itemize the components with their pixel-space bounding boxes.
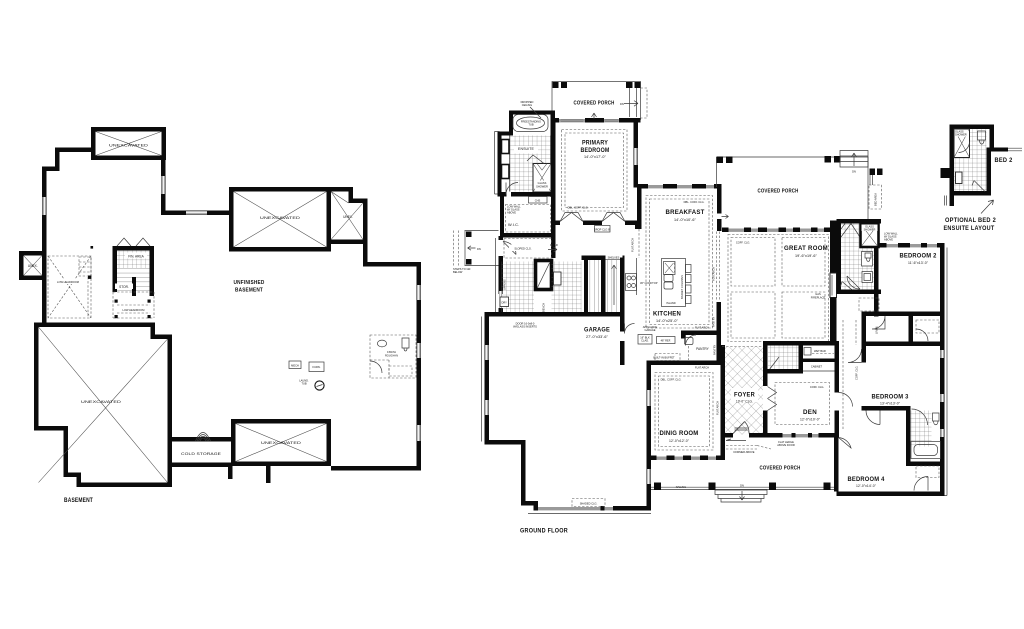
- svg-text:LOW HEADROOM: LOW HEADROOM: [123, 308, 145, 312]
- svg-text:DBL. COFF. CLG.: DBL. COFF. CLG.: [661, 378, 682, 382]
- svg-text:OPTIONAL BED 2: OPTIONAL BED 2: [945, 217, 996, 224]
- svg-text:W/GLASS INSERTS: W/GLASS INSERTS: [513, 325, 537, 329]
- svg-text:BELOW: BELOW: [453, 270, 463, 274]
- svg-text:FLAT ARCH: FLAT ARCH: [712, 267, 716, 281]
- svg-text:ABOVE DOOR: ABOVE DOOR: [777, 443, 795, 447]
- svg-text:BASEMENT: BASEMENT: [64, 498, 93, 504]
- svg-text:FOYER: FOYER: [734, 392, 755, 399]
- svg-text:13'-4"x13'-0": 13'-4"x13'-0": [880, 401, 900, 406]
- svg-text:10'-0" CLG.: 10'-0" CLG.: [736, 399, 753, 404]
- svg-text:STOR.: STOR.: [119, 285, 129, 289]
- svg-text:DEN: DEN: [803, 409, 817, 416]
- svg-text:DINIG ROOM: DINIG ROOM: [660, 431, 699, 437]
- svg-text:11'-6"x13'-0": 11'-6"x13'-0": [908, 260, 928, 265]
- svg-text:12'-0"x12'-0": 12'-0"x12'-0": [669, 438, 689, 443]
- svg-text:PANTRY: PANTRY: [712, 316, 716, 327]
- svg-text:WET BAR: WET BAR: [814, 349, 826, 353]
- svg-text:UNEX.: UNEX.: [28, 264, 38, 268]
- svg-text:ROUGH-IN: ROUGH-IN: [385, 354, 398, 358]
- svg-text:DN: DN: [477, 247, 481, 251]
- svg-text:BASKET COLUMNS: BASKET COLUMNS: [680, 275, 684, 299]
- svg-text:SLOPED CLG.: SLOPED CLG.: [514, 247, 532, 251]
- svg-text:GARAGE: GARAGE: [584, 328, 610, 334]
- svg-text:GLASS: GLASS: [538, 181, 547, 185]
- svg-text:COLD STORAGE: COLD STORAGE: [181, 451, 221, 456]
- svg-text:PANTRY: PANTRY: [713, 344, 717, 355]
- svg-text:CABINET: CABINET: [811, 365, 823, 369]
- svg-text:SHELVES: SHELVES: [608, 256, 620, 260]
- svg-text:FLAT ARCH: FLAT ARCH: [695, 326, 709, 330]
- svg-text:DN: DN: [740, 484, 744, 488]
- svg-text:14'-0"x17'-0": 14'-0"x17'-0": [584, 154, 606, 159]
- svg-text:DN 1R: DN 1R: [550, 243, 558, 247]
- svg-text:UPPERS: UPPERS: [503, 279, 507, 290]
- svg-text:GREAT ROOM: GREAT ROOM: [784, 245, 828, 252]
- svg-text:UNEX.: UNEX.: [343, 215, 353, 219]
- svg-text:TUB: TUB: [301, 382, 306, 386]
- svg-text:GROUND FLOOR: GROUND FLOOR: [520, 528, 568, 535]
- svg-text:BUILT-IN BUFFET: BUILT-IN BUFFET: [653, 356, 675, 360]
- svg-text:BREAKFAST: BREAKFAST: [666, 210, 705, 216]
- svg-text:FLAT ARCH: FLAT ARCH: [631, 238, 635, 252]
- svg-text:UNEXCAVATED: UNEXCAVATED: [260, 215, 300, 220]
- svg-text:SHADED CLG.: SHADED CLG.: [580, 502, 598, 506]
- svg-text:LOW HEADROOM: LOW HEADROOM: [57, 280, 79, 284]
- svg-text:DRY: DRY: [501, 301, 507, 305]
- svg-text:48" REF.: 48" REF.: [661, 339, 671, 343]
- svg-text:ABOVE: ABOVE: [507, 211, 516, 215]
- svg-text:SHOWER: SHOWER: [864, 228, 876, 232]
- svg-text:COVERED PORCH: COVERED PORCH: [758, 189, 799, 195]
- svg-text:COVERED PORCH: COVERED PORCH: [574, 101, 615, 107]
- svg-text:UNEXCAVATED: UNEXCAVATED: [109, 143, 148, 148]
- svg-text:PANTRY: PANTRY: [696, 347, 710, 351]
- svg-text:SHOWER: SHOWER: [536, 185, 548, 189]
- svg-text:19'-6"x19'-6": 19'-6"x19'-6": [795, 253, 817, 258]
- svg-text:12'-0"x14'-0": 12'-0"x14'-0": [856, 483, 876, 488]
- svg-text:14'-0"x10'-6": 14'-0"x10'-6": [674, 217, 696, 222]
- svg-text:DORMER ABOVE: DORMER ABOVE: [733, 450, 754, 454]
- svg-text:UNEXCAVATED: UNEXCAVATED: [261, 440, 301, 445]
- svg-text:CHS: CHS: [535, 199, 541, 203]
- svg-text:ENSUITE LAYOUT: ENSUITE LAYOUT: [944, 225, 995, 232]
- svg-text:GARAGE: GARAGE: [644, 328, 655, 332]
- svg-text:CEILING: CEILING: [522, 103, 532, 107]
- svg-text:PRIMARY: PRIMARY: [582, 141, 608, 147]
- svg-text:DROP CLG 8': DROP CLG 8': [594, 228, 611, 232]
- svg-text:12'-0"x10'-0": 12'-0"x10'-0": [800, 417, 820, 422]
- svg-text:BED 2: BED 2: [995, 157, 1013, 164]
- svg-text:FIN. AREA: FIN. AREA: [128, 255, 144, 259]
- svg-text:UNFINISHED: UNFINISHED: [234, 280, 265, 286]
- svg-text:MECH: MECH: [291, 364, 299, 368]
- svg-text:FLAT ARCH: FLAT ARCH: [695, 366, 709, 370]
- svg-text:TUB: TUB: [528, 123, 533, 127]
- svg-text:FURN.: FURN.: [313, 365, 321, 369]
- svg-text:UP: UP: [589, 256, 593, 260]
- svg-text:UNEXCAVATED: UNEXCAVATED: [81, 399, 121, 404]
- svg-text:DBL. COFF. CLG.: DBL. COFF. CLG.: [568, 206, 589, 210]
- svg-text:COFF. CLG.: COFF. CLG.: [855, 365, 859, 380]
- svg-text:FLAT ARCH: FLAT ARCH: [716, 401, 720, 415]
- svg-text:14'-0"x25'-0": 14'-0"x25'-0": [656, 318, 678, 323]
- svg-text:COFF. CLG.: COFF. CLG.: [736, 241, 751, 245]
- svg-text:ENSUITE: ENSUITE: [518, 146, 534, 151]
- svg-text:FLAT ARCH 8'-0": FLAT ARCH 8'-0": [833, 324, 837, 344]
- svg-text:W.I.C.: W.I.C.: [508, 222, 519, 227]
- svg-text:KITCHEN: KITCHEN: [653, 312, 681, 318]
- svg-text:DBL. COFF. CLG.: DBL. COFF. CLG.: [684, 200, 705, 204]
- svg-text:COVERED PORCH: COVERED PORCH: [760, 466, 801, 472]
- svg-text:DN: DN: [852, 170, 856, 174]
- svg-text:BASEMENT: BASEMENT: [235, 288, 263, 294]
- svg-text:ISLAND: ISLAND: [666, 301, 675, 305]
- svg-text:CLAD.: CLAD.: [641, 339, 649, 343]
- svg-text:GAS: GAS: [815, 292, 821, 296]
- svg-text:SHOWER: SHOWER: [955, 133, 967, 137]
- svg-text:FIREPLACE: FIREPLACE: [811, 296, 826, 300]
- svg-text:ABOVE: ABOVE: [884, 238, 893, 242]
- svg-text:BED AREA: BED AREA: [874, 193, 878, 206]
- svg-text:RAILING: RAILING: [676, 485, 686, 489]
- svg-text:BEDROOM 2: BEDROOM 2: [900, 254, 937, 260]
- svg-text:F.BATH: F.BATH: [387, 350, 396, 354]
- svg-text:27'-0"x33'-6": 27'-0"x33'-6": [586, 334, 608, 339]
- svg-text:DN: DN: [620, 102, 624, 106]
- svg-text:36" COOKTOP: 36" COOKTOP: [640, 281, 658, 285]
- svg-text:BENCH: BENCH: [542, 303, 546, 312]
- svg-text:COFF. CLG.: COFF. CLG.: [810, 385, 825, 389]
